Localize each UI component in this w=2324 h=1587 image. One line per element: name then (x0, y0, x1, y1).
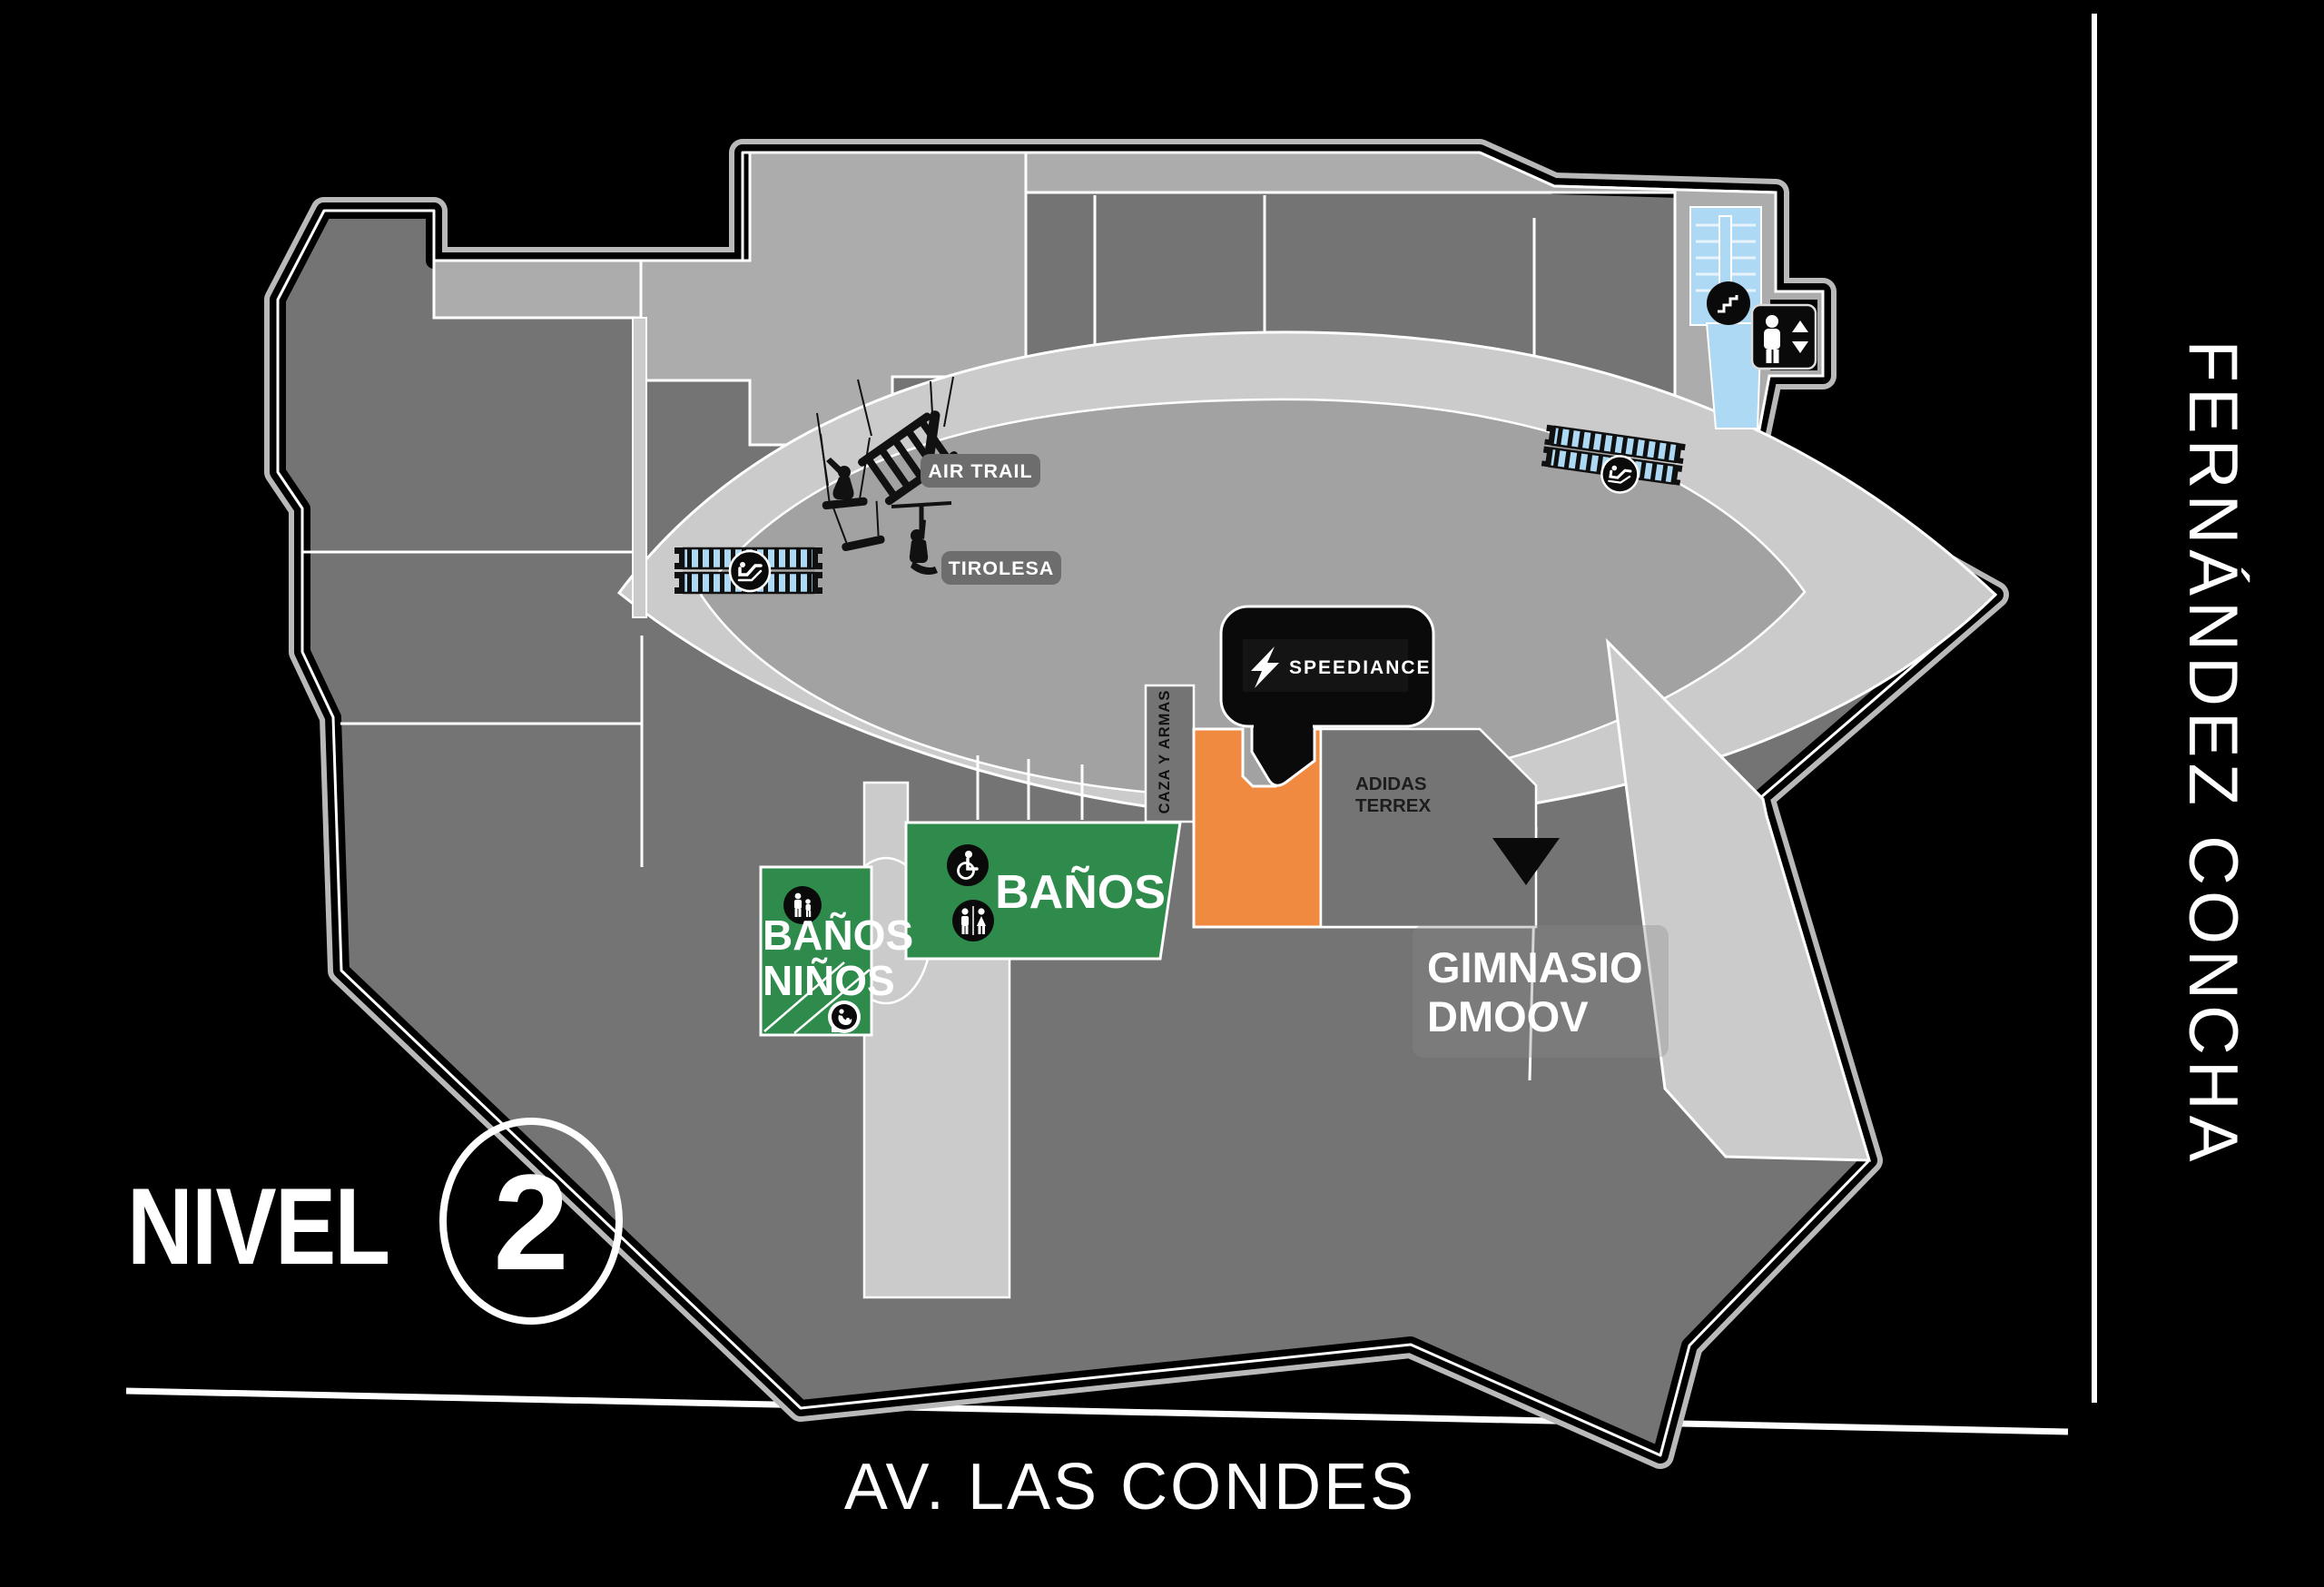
wheelchair-icon (947, 844, 989, 886)
air-trail-label: AIR TRAIL (928, 460, 1032, 482)
street-line-bottom (126, 1391, 2068, 1432)
banos-ninos-label-2: NIÑOS (763, 957, 895, 1004)
men-women-icon (952, 900, 994, 941)
stairs-icon (1707, 281, 1750, 325)
level-number: 2 (493, 1146, 568, 1298)
elevator-icon[interactable] (1752, 305, 1816, 369)
floorplan-svg: BAÑOS BAÑOS NIÑOS (0, 0, 2324, 1587)
gimnasio-label-1: GIMNASIO (1427, 943, 1643, 991)
corridor-lower (864, 959, 1009, 1297)
tirolesa-badge[interactable]: TIROLESA (941, 551, 1061, 585)
caza-label: CAZA Y ARMAS (1157, 690, 1173, 814)
gimnasio-label-2: DMOOV (1427, 992, 1589, 1040)
banos-label: BAÑOS (995, 865, 1166, 919)
adidas-label-1: ADIDAS (1355, 774, 1427, 794)
escalator-icon (730, 551, 770, 591)
baby-care-icon (828, 1000, 861, 1033)
corridor-strip-left (633, 318, 646, 617)
air-trail-badge[interactable]: AIR TRAIL (921, 454, 1040, 488)
store-caza-y-armas[interactable]: CAZA Y ARMAS (1146, 685, 1194, 822)
level-label: NIVEL (127, 1167, 389, 1287)
store-adidas-terrex[interactable]: ADIDAS TERREX (1321, 729, 1536, 927)
street-label-bottom: AV. LAS CONDES (844, 1451, 1416, 1523)
level-title: NIVEL 2 (127, 1121, 619, 1321)
mall-map-level-2: BAÑOS BAÑOS NIÑOS (0, 0, 2324, 1587)
street-label-right: FERNÁNDEZ CONCHA (2174, 340, 2251, 1168)
adidas-label-2: TERREX (1355, 795, 1431, 816)
banos-ninos-label-1: BAÑOS (763, 912, 913, 959)
speediance-label: SPEEDIANCE (1289, 657, 1432, 678)
adidas-block[interactable] (1321, 729, 1536, 927)
banos-zone[interactable]: BAÑOS (906, 823, 1180, 959)
elevator[interactable] (1752, 305, 1816, 369)
band-left (434, 261, 641, 318)
tirolesa-label: TIROLESA (949, 557, 1055, 579)
